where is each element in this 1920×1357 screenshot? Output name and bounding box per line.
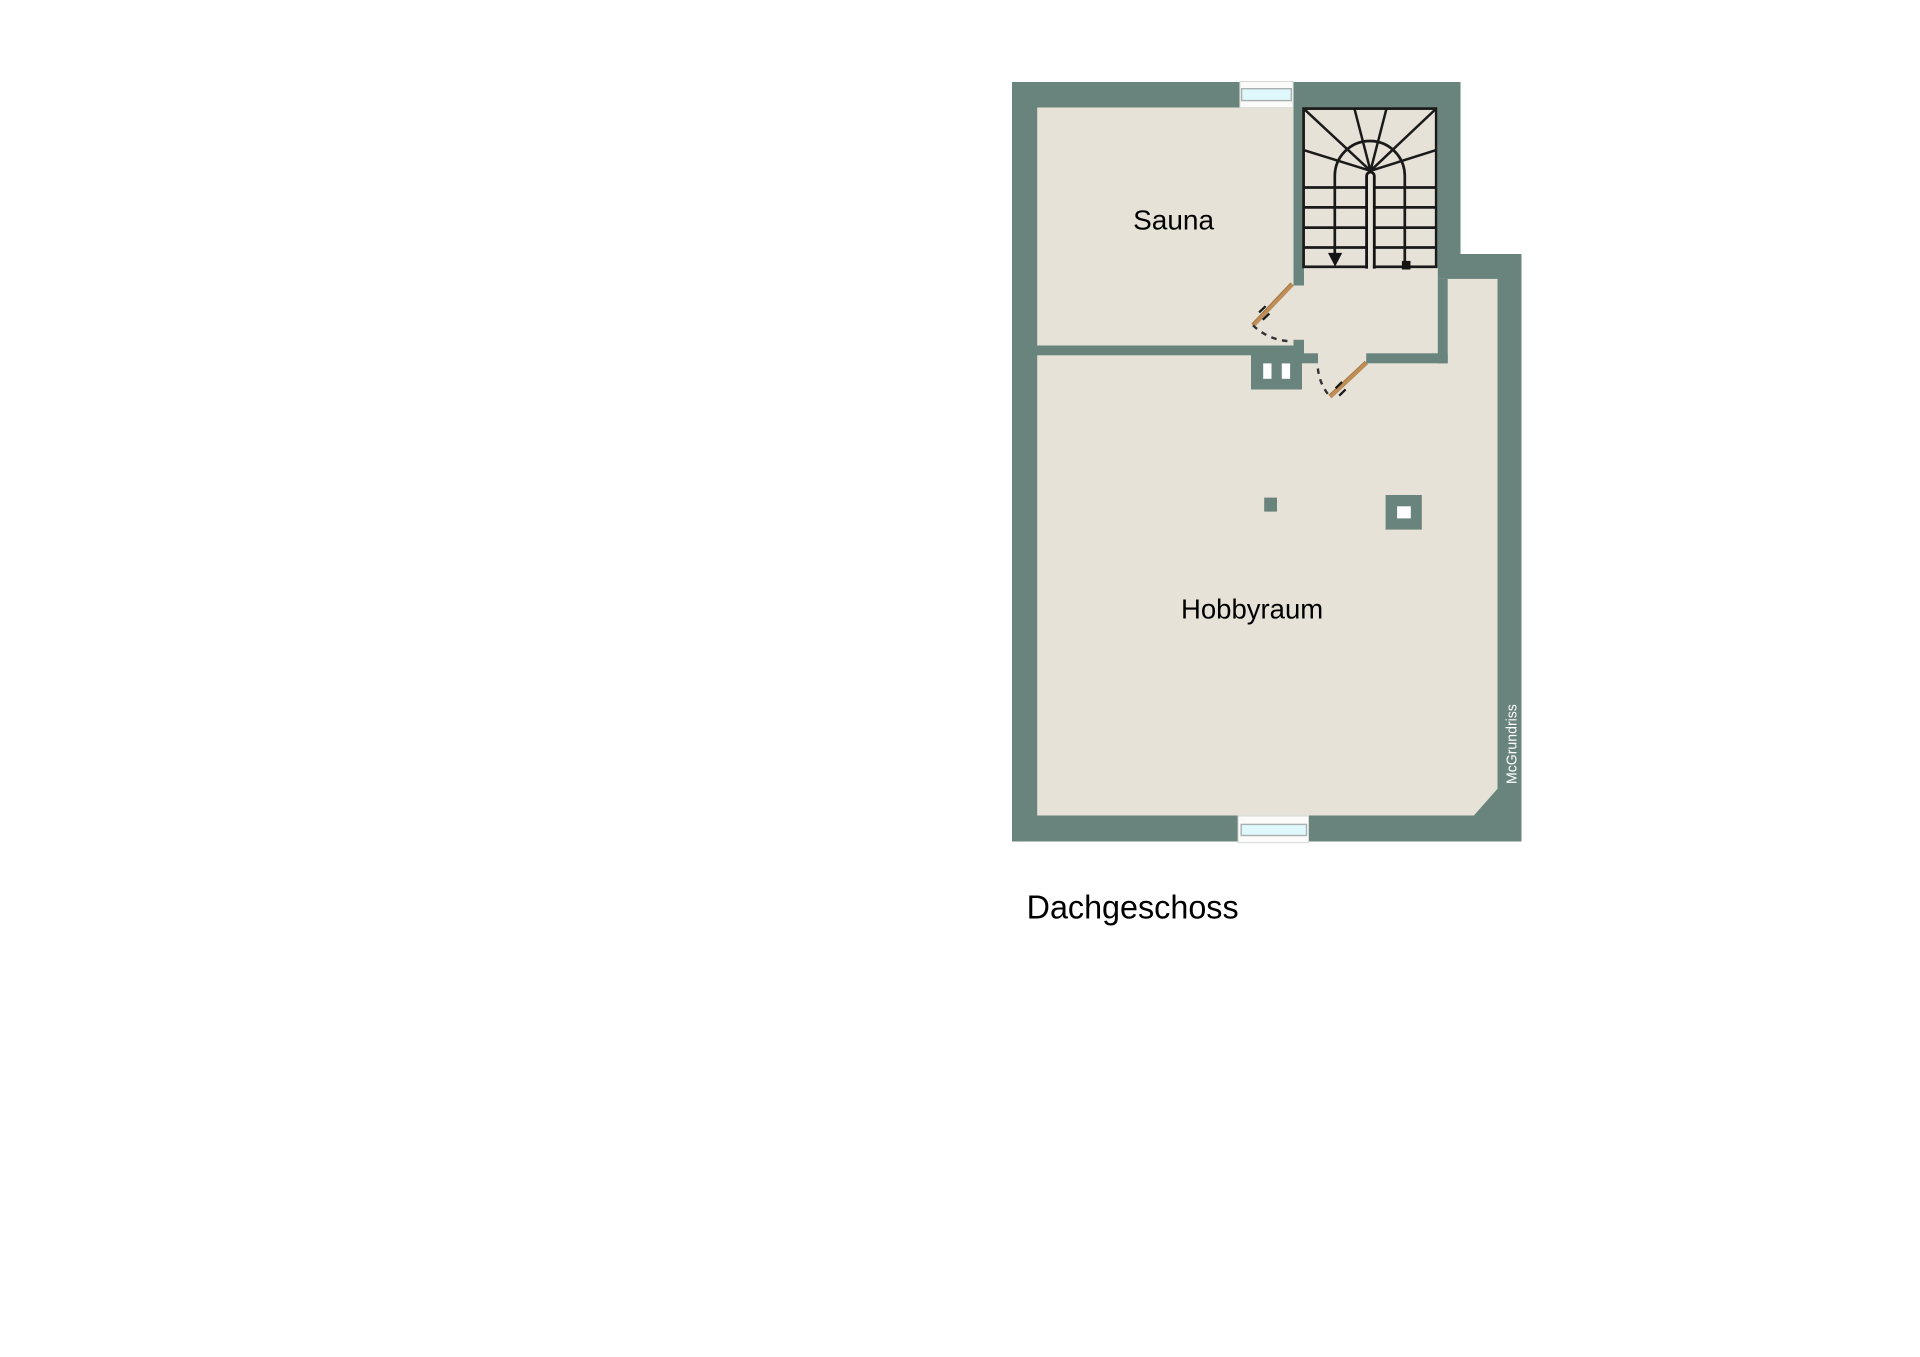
svg-text:Hobbyraum: Hobbyraum	[1181, 594, 1323, 625]
svg-text:Sauna: Sauna	[1133, 204, 1214, 235]
svg-text:McGrundriss: McGrundriss	[1504, 704, 1520, 784]
svg-text:Dachgeschoss: Dachgeschoss	[1027, 888, 1239, 925]
